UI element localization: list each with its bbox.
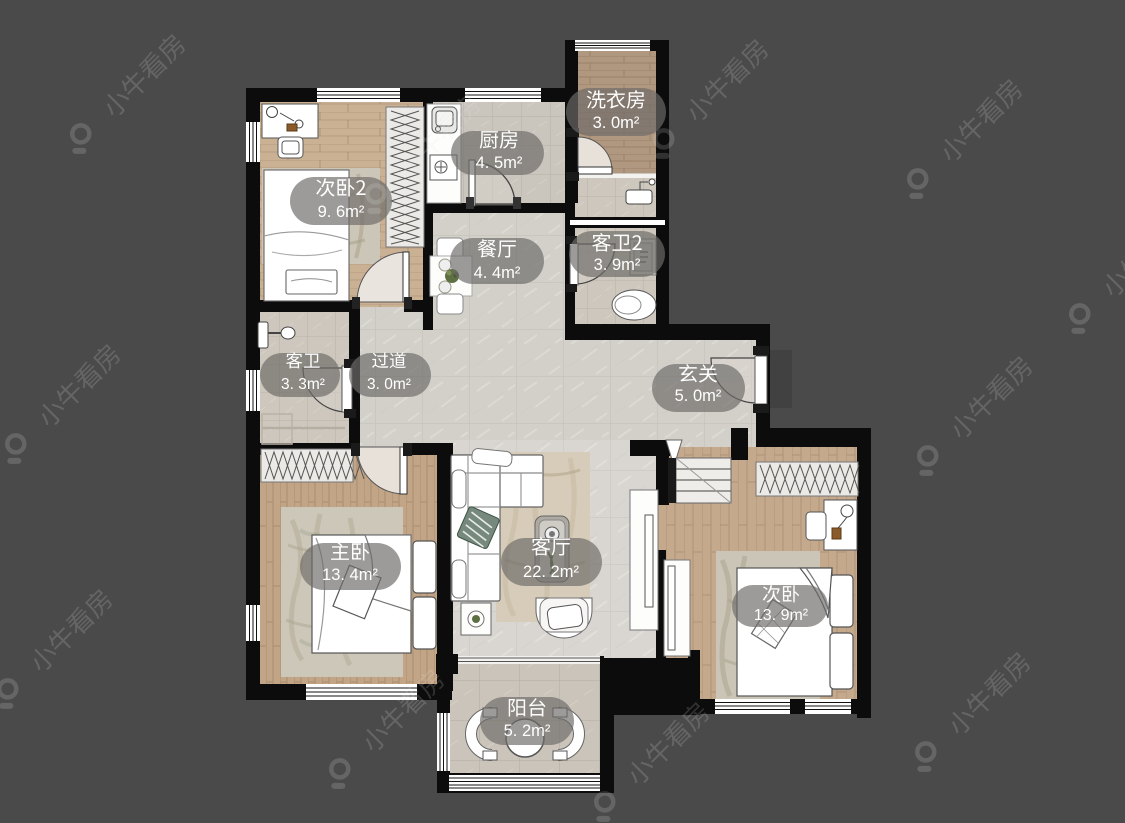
svg-text:3. 0m²: 3. 0m² (593, 114, 640, 132)
svg-text:5. 2m²: 5. 2m² (504, 722, 551, 740)
svg-text:4. 4m²: 4. 4m² (474, 264, 521, 282)
svg-text:13. 9m²: 13. 9m² (754, 607, 809, 624)
svg-text:13. 4m²: 13. 4m² (322, 566, 378, 584)
svg-text:3. 9m²: 3. 9m² (594, 256, 641, 274)
svg-text:3. 0m²: 3. 0m² (367, 376, 411, 393)
svg-text:5. 0m²: 5. 0m² (675, 387, 722, 405)
svg-text:3. 3m²: 3. 3m² (281, 376, 325, 393)
svg-text:9. 6m²: 9. 6m² (318, 203, 365, 221)
svg-text:22. 2m²: 22. 2m² (523, 563, 579, 581)
svg-text:4. 5m²: 4. 5m² (476, 154, 523, 172)
